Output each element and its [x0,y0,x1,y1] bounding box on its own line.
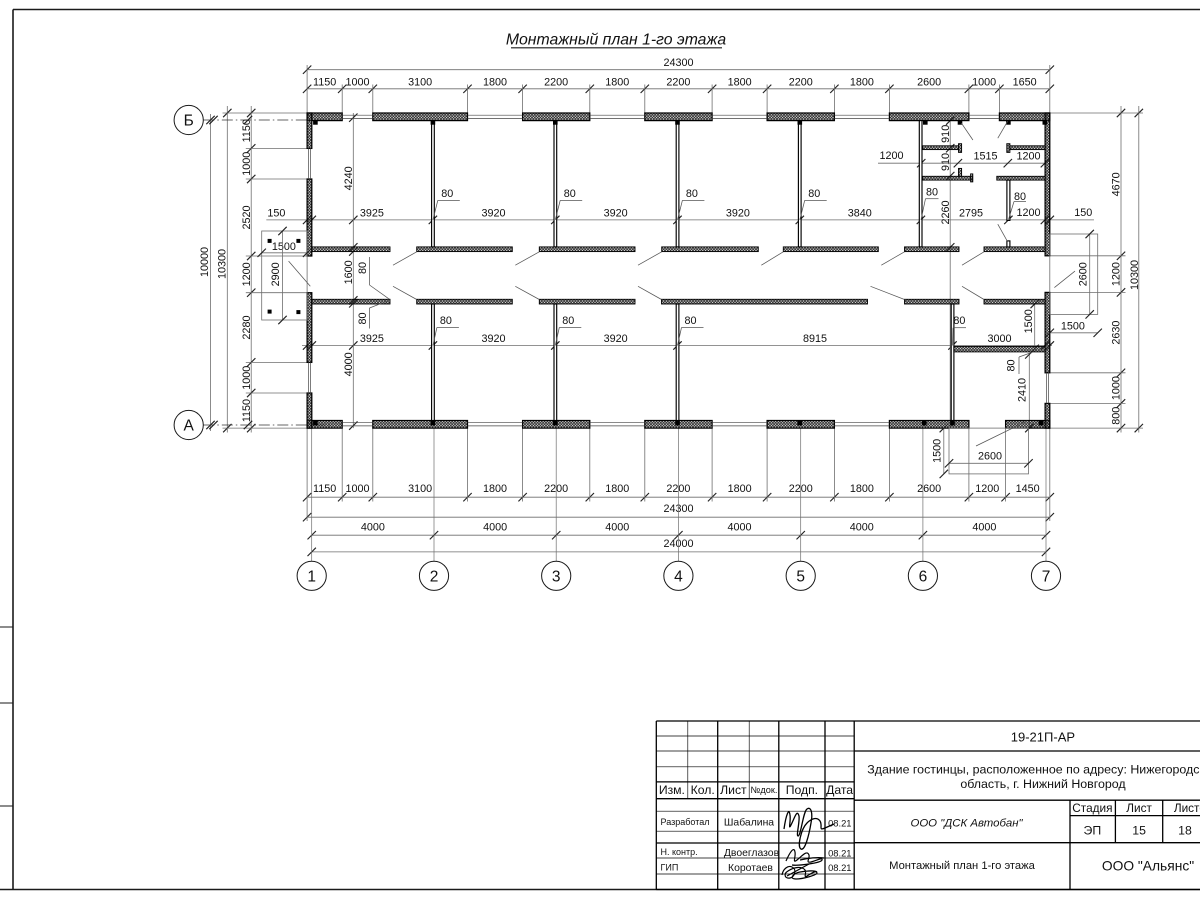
svg-text:1515: 1515 [973,151,997,163]
svg-text:1000: 1000 [345,483,369,495]
svg-text:80: 80 [686,188,698,200]
svg-text:80: 80 [926,187,938,199]
svg-text:ЭП: ЭП [1084,824,1102,838]
svg-text:4000: 4000 [483,521,507,533]
svg-text:Лист: Лист [720,783,747,797]
svg-text:№док.: №док. [751,785,778,795]
svg-text:150: 150 [267,207,285,219]
svg-text:4000: 4000 [343,352,355,376]
svg-text:Н. контр.: Н. контр. [661,847,698,857]
svg-text:Шабалина: Шабалина [724,816,774,828]
svg-text:2: 2 [430,568,439,585]
svg-text:2600: 2600 [917,483,941,495]
svg-text:4240: 4240 [343,166,355,190]
svg-text:3100: 3100 [408,77,432,89]
svg-text:Разработал: Разработал [661,817,710,827]
svg-text:Подп.: Подп. [786,783,818,797]
svg-text:1500: 1500 [1061,320,1085,332]
svg-text:3920: 3920 [604,207,628,219]
svg-text:4: 4 [674,568,683,585]
svg-text:1450: 1450 [1016,483,1040,495]
svg-text:80: 80 [357,312,369,324]
svg-text:1800: 1800 [728,77,752,89]
svg-text:4000: 4000 [972,521,996,533]
svg-text:1200: 1200 [1016,151,1040,163]
svg-text:18: 18 [1178,824,1192,838]
svg-text:3920: 3920 [481,333,505,345]
svg-text:1800: 1800 [728,483,752,495]
svg-text:3840: 3840 [848,207,872,219]
svg-text:80: 80 [441,188,453,200]
svg-text:19-21П-АР: 19-21П-АР [1011,729,1075,744]
svg-text:80: 80 [562,315,574,327]
svg-text:4000: 4000 [728,521,752,533]
svg-text:2200: 2200 [789,77,813,89]
svg-text:Кол.: Кол. [691,783,715,797]
svg-text:3925: 3925 [360,207,384,219]
svg-text:1200: 1200 [879,150,903,162]
svg-text:4000: 4000 [361,521,385,533]
svg-text:1150: 1150 [313,483,336,495]
svg-text:1200: 1200 [1016,207,1040,219]
svg-text:Здание гостинцы, расположенное: Здание гостинцы, расположенное по адресу… [867,762,1200,776]
svg-text:А: А [184,418,195,435]
svg-text:1500: 1500 [932,439,944,463]
svg-text:4000: 4000 [605,521,629,533]
svg-text:1000: 1000 [241,366,253,390]
svg-text:Коротаев: Коротаев [728,863,773,874]
svg-text:08.21: 08.21 [828,862,851,873]
svg-text:1200: 1200 [975,483,999,495]
svg-text:80: 80 [684,315,696,327]
svg-text:Двоеглазов: Двоеглазов [724,848,780,859]
svg-text:Монтажный план 1-го этажа: Монтажный план 1-го этажа [889,860,1035,872]
svg-text:5: 5 [796,568,805,585]
svg-text:Б: Б [184,113,194,130]
svg-text:2795: 2795 [959,207,983,219]
svg-text:800: 800 [1110,407,1122,425]
svg-text:1150: 1150 [241,399,253,422]
svg-text:1500: 1500 [272,241,296,253]
svg-text:2200: 2200 [544,77,568,89]
svg-text:3920: 3920 [726,207,750,219]
svg-text:Стадия: Стадия [1072,801,1112,815]
svg-text:2410: 2410 [1017,378,1029,402]
svg-text:2520: 2520 [241,205,253,229]
svg-text:2200: 2200 [666,77,690,89]
svg-text:1650: 1650 [1013,77,1037,89]
svg-text:ООО "ДСК Автобан": ООО "ДСК Автобан" [910,818,1023,830]
svg-text:4000: 4000 [850,521,874,533]
svg-text:08.21: 08.21 [828,847,851,858]
svg-text:80: 80 [440,315,452,327]
svg-text:08.21: 08.21 [828,818,851,829]
svg-text:8915: 8915 [803,333,827,345]
svg-text:2280: 2280 [241,316,253,340]
svg-text:80: 80 [808,188,820,200]
svg-text:ГИП: ГИП [661,862,679,872]
svg-text:3100: 3100 [408,483,432,495]
svg-text:2600: 2600 [917,77,941,89]
svg-text:ООО "Альянс": ООО "Альянс" [1102,859,1194,874]
svg-text:Изм.: Изм. [659,783,685,797]
svg-text:2600: 2600 [978,451,1002,463]
svg-text:2600: 2600 [1077,262,1089,286]
svg-text:Монтажный план 1-го этажа: Монтажный план 1-го этажа [506,32,726,49]
svg-text:10300: 10300 [217,249,229,279]
svg-text:2630: 2630 [1110,321,1122,345]
svg-text:1: 1 [307,568,316,585]
svg-text:1150: 1150 [313,77,336,89]
svg-text:4670: 4670 [1110,172,1122,196]
svg-text:80: 80 [1014,191,1026,203]
svg-text:7: 7 [1042,568,1051,585]
svg-text:1500: 1500 [1023,309,1035,333]
svg-text:2260: 2260 [940,200,952,224]
svg-text:область, г. Нижний Новгород: область, г. Нижний Новгород [960,777,1126,791]
svg-text:3920: 3920 [481,207,505,219]
svg-text:1800: 1800 [605,77,629,89]
svg-text:910: 910 [940,153,952,171]
svg-text:1000: 1000 [1110,376,1122,400]
svg-text:1150: 1150 [241,119,253,142]
svg-text:Лист: Лист [1126,801,1152,815]
svg-text:3920: 3920 [604,333,628,345]
svg-text:80: 80 [564,188,576,200]
svg-text:1200: 1200 [241,262,253,286]
svg-text:Дата: Дата [826,783,853,797]
svg-text:80: 80 [953,315,965,327]
svg-text:24300: 24300 [663,57,693,69]
svg-text:6: 6 [919,568,928,585]
svg-text:150: 150 [1074,207,1092,219]
svg-text:1000: 1000 [241,152,253,176]
svg-text:910: 910 [940,125,952,143]
svg-text:1800: 1800 [483,483,507,495]
svg-text:1800: 1800 [605,483,629,495]
svg-text:1200: 1200 [1110,262,1122,286]
svg-text:3: 3 [552,568,561,585]
svg-text:1800: 1800 [850,483,874,495]
svg-text:Листов: Листов [1174,801,1200,815]
svg-text:3000: 3000 [987,333,1011,345]
svg-text:10300: 10300 [1129,260,1141,290]
svg-text:1000: 1000 [345,77,369,89]
svg-text:2900: 2900 [270,262,282,286]
svg-text:1000: 1000 [972,77,996,89]
svg-text:1600: 1600 [343,260,355,284]
svg-text:15: 15 [1132,824,1146,838]
svg-text:10000: 10000 [199,247,211,277]
svg-text:80: 80 [357,262,369,274]
svg-text:1800: 1800 [483,77,507,89]
svg-text:1800: 1800 [850,77,874,89]
svg-text:3925: 3925 [360,333,384,345]
svg-text:80: 80 [1006,359,1018,371]
